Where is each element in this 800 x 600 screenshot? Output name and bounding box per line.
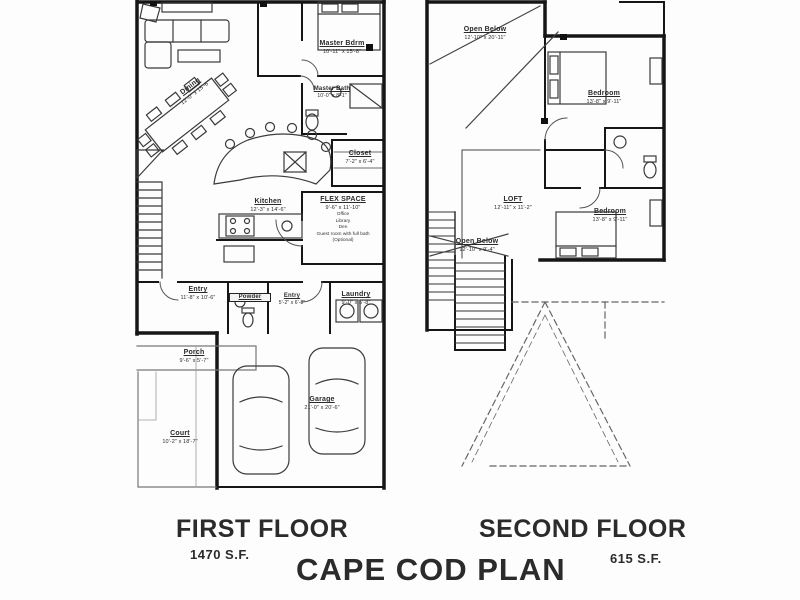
room-name: Master Bath xyxy=(300,86,364,93)
room-dims: 5'-2" x 6'-8" xyxy=(270,301,314,307)
room-label-loft: LOFT 12'-11" x 11'-2" xyxy=(478,196,548,211)
room-dims: 9'-6" x 5'-7" xyxy=(168,358,220,364)
room-label-flex-space: FLEX SPACE 9'-6" x 11'-10" Office Librar… xyxy=(302,196,384,244)
room-name: Court xyxy=(152,430,208,438)
room-label-open-below-top: Open Below 12'-10" x 20'-11" xyxy=(450,26,520,41)
room-name: LOFT xyxy=(478,196,548,204)
room-label-closet: Closet 7'-2" x 6'-4" xyxy=(336,150,384,165)
flex-option: Office xyxy=(302,212,384,218)
open-below-slash xyxy=(430,6,558,128)
room-label-entry-garage: Entry 5'-2" x 6'-8" xyxy=(270,293,314,307)
room-name: Entry xyxy=(172,286,224,294)
room-name: Closet xyxy=(336,150,384,158)
second-floor-area: 615 S.F. xyxy=(610,551,662,566)
first-floor-title: FIRST FLOOR xyxy=(176,515,348,544)
room-name: FLEX SPACE xyxy=(302,196,384,204)
room-label-garage: Garage 21'-0" x 20'-6" xyxy=(294,396,350,411)
first-floor-drawing xyxy=(129,0,384,488)
second-floor-title: SECOND FLOOR xyxy=(479,515,686,544)
flex-option: Library xyxy=(302,219,384,225)
floorplan-page: Master Bdrm 10'-11" x 15'-8" Master Bath… xyxy=(0,0,800,600)
room-dims: 12'-3" x 14'-6" xyxy=(238,207,298,213)
room-name: Bedroom xyxy=(566,90,642,98)
room-name: Master Bdrm xyxy=(296,40,388,48)
room-label-master-bath: Master Bath 10'-0" x 8'-1" xyxy=(300,86,364,100)
kitchen-island xyxy=(214,134,331,184)
second-floor-drawing xyxy=(427,0,664,466)
room-label-kitchen: Kitchen 12'-3" x 14'-6" xyxy=(238,198,298,213)
room-name: Open Below xyxy=(450,26,520,34)
room-dims: 12'-11" x 11'-2" xyxy=(478,205,548,211)
car-1 xyxy=(233,366,289,474)
room-dims: 10'-2" x 18'-7" xyxy=(152,439,208,445)
room-label-entry-front: Entry 11'-8" x 10'-6" xyxy=(172,286,224,301)
room-dims: 9'-6" x 11'-10" xyxy=(302,205,384,211)
room-name: Kitchen xyxy=(238,198,298,206)
room-label-laundry: Laundry 9'-0" x 5'-8" xyxy=(330,291,382,306)
flex-option: Guest room with full bath xyxy=(302,232,384,238)
flex-option: Den xyxy=(302,225,384,231)
room-name: Porch xyxy=(168,349,220,357)
floorplan-linework xyxy=(0,0,800,600)
room-label-open-below-mid: Open Below 12'-10" x 9'-4" xyxy=(442,238,512,253)
room-name: Powder xyxy=(232,294,268,301)
room-dims: 7'-2" x 6'-4" xyxy=(336,159,384,165)
room-label-court: Court 10'-2" x 18'-7" xyxy=(152,430,208,445)
room-label-bedroom-bottom: Bedroom 13'-8" x 9'-11" xyxy=(572,208,648,223)
first-floor-area: 1470 S.F. xyxy=(190,547,249,562)
room-dims: 13'-8" x 9'-11" xyxy=(566,99,642,105)
flex-option: (Optional) xyxy=(302,238,384,244)
room-name: Garage xyxy=(294,396,350,404)
room-dims: 12'-10" x 20'-11" xyxy=(450,35,520,41)
room-dims: 10'-0" x 8'-1" xyxy=(300,94,364,100)
room-name: Laundry xyxy=(330,291,382,299)
room-name: Bedroom xyxy=(572,208,648,216)
room-label-powder: Powder xyxy=(229,293,271,302)
room-dims: 11'-8" x 10'-6" xyxy=(172,295,224,301)
room-dims: 9'-0" x 5'-8" xyxy=(330,300,382,306)
plan-title: CAPE COD PLAN xyxy=(296,552,566,588)
room-dims: 10'-11" x 15'-8" xyxy=(296,49,388,55)
room-label-bedroom-top: Bedroom 13'-8" x 9'-11" xyxy=(566,90,642,105)
room-name: Open Below xyxy=(442,238,512,246)
room-dims: 21'-0" x 20'-6" xyxy=(294,405,350,411)
dining-table xyxy=(129,62,245,168)
room-dims: 12'-10" x 9'-4" xyxy=(442,247,512,253)
room-dims: 13'-8" x 9'-11" xyxy=(572,217,648,223)
room-name: Entry xyxy=(270,293,314,300)
room-label-master-bdrm: Master Bdrm 10'-11" x 15'-8" xyxy=(296,40,388,55)
room-label-porch: Porch 9'-6" x 5'-7" xyxy=(168,349,220,364)
